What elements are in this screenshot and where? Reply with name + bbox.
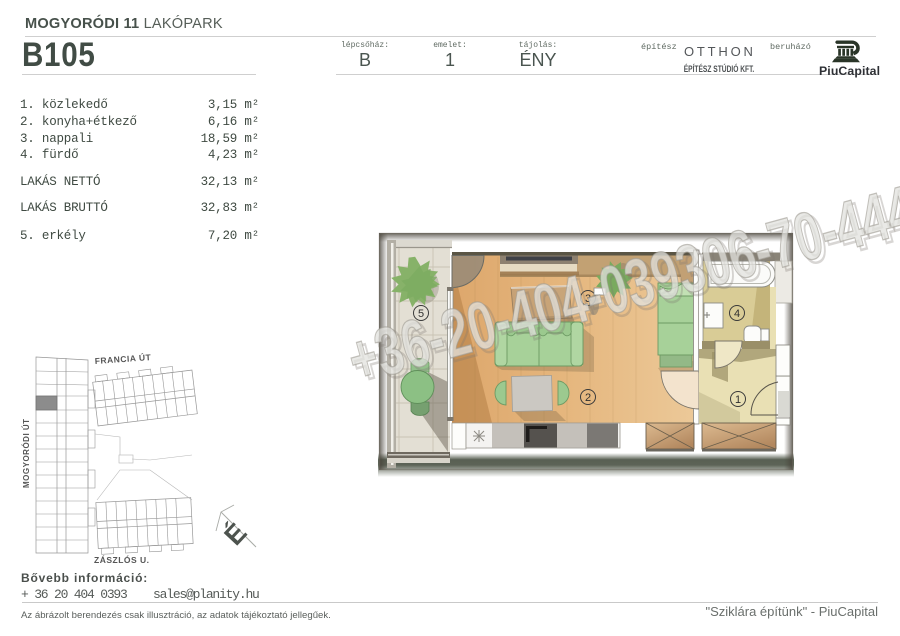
svg-text:FRANCIA ÚT: FRANCIA ÚT [94, 351, 152, 366]
svg-text:ZÁSZLÓS U.: ZÁSZLÓS U. [94, 554, 150, 565]
svg-text:MOGYORÓDI ÚT: MOGYORÓDI ÚT [22, 418, 31, 488]
svg-text:É: É [218, 517, 253, 551]
